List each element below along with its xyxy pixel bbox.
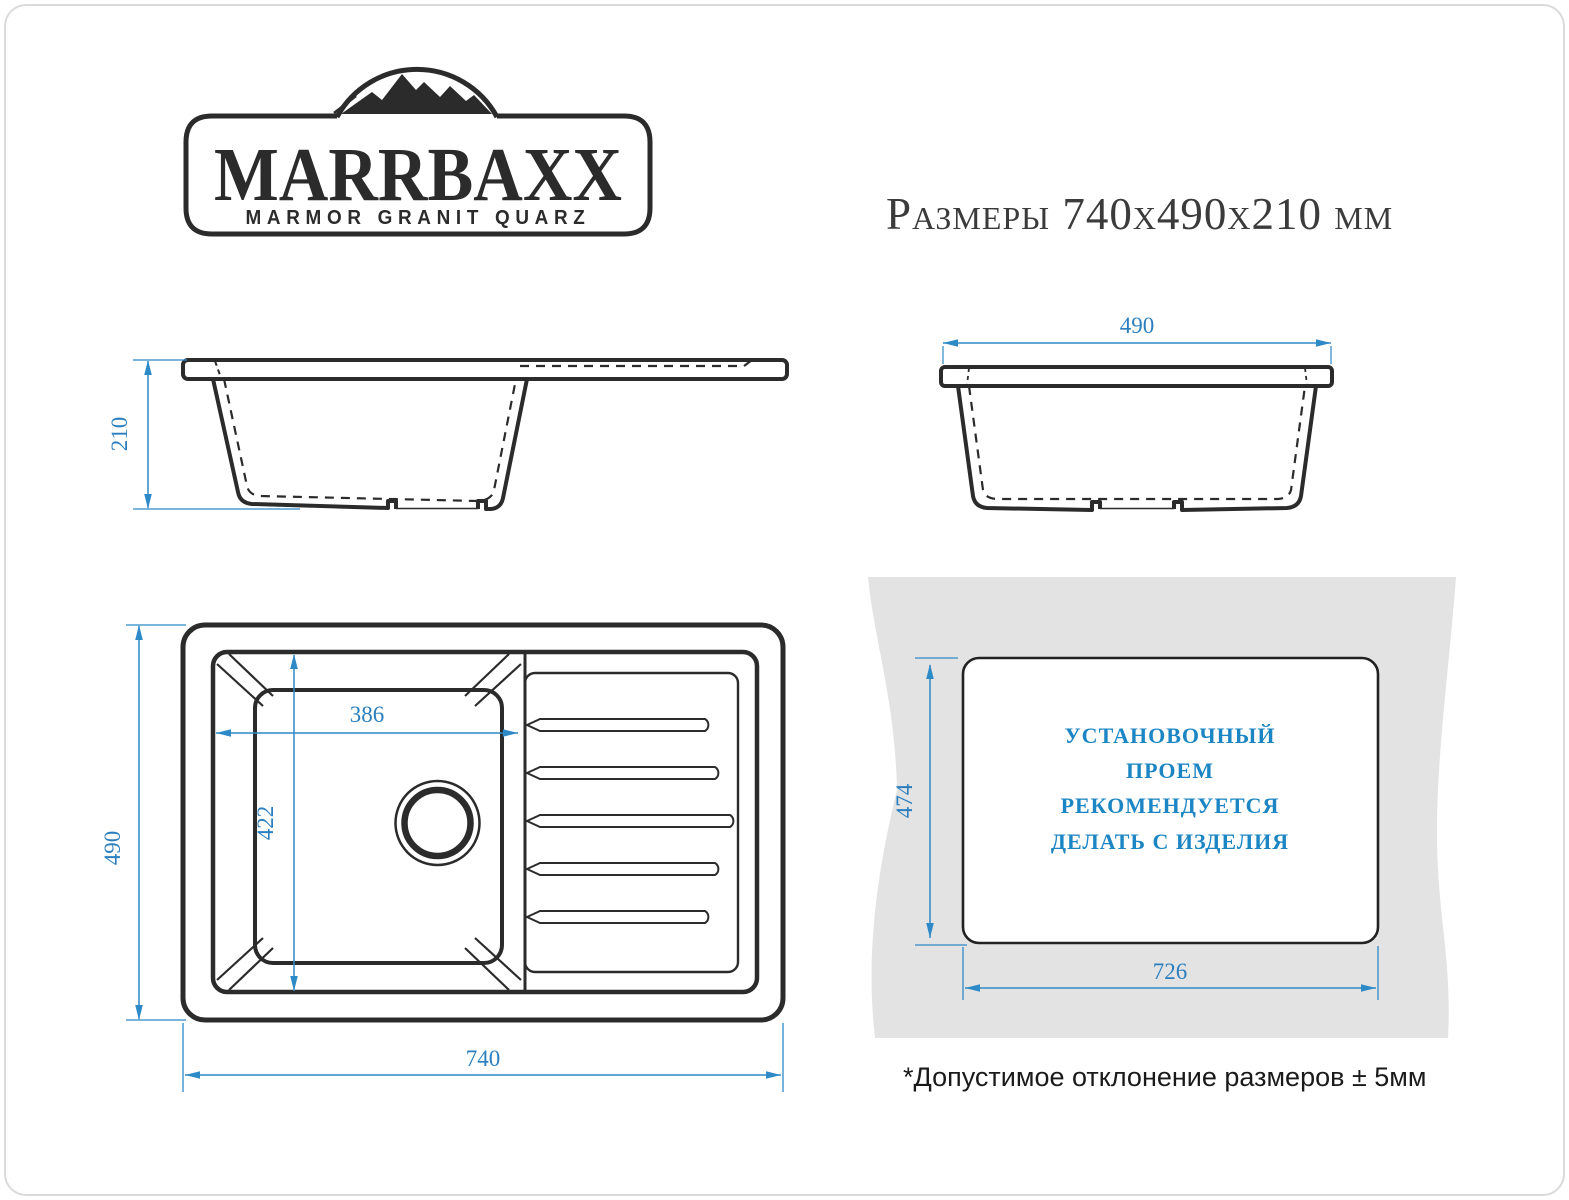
brand-name: MARRBAXX xyxy=(214,133,622,217)
arrow-left-icon xyxy=(185,1071,200,1079)
sink-length-dim-label: 740 xyxy=(466,1046,501,1071)
arrow-up-icon xyxy=(135,625,143,640)
page-title: Размеры 740х490х210 мм xyxy=(886,188,1393,240)
bowl-width-dim-label: 386 xyxy=(350,702,385,727)
install-note-line: УСТАНОВОЧНЫЙ xyxy=(1065,723,1276,748)
install-note-line: РЕКОМЕНДУЕТСЯ xyxy=(1061,793,1280,818)
front-rim xyxy=(941,367,1332,386)
arrow-down-icon xyxy=(144,494,152,509)
sink-depth-dim-label: 490 xyxy=(100,831,125,866)
drainboard-groove xyxy=(527,863,718,875)
arrow-left-icon xyxy=(943,339,958,347)
side-bowl-outline xyxy=(213,379,527,509)
drainboard-groove xyxy=(527,719,708,731)
arrow-right-icon xyxy=(766,1071,781,1079)
cutout-depth-dim-label: 474 xyxy=(892,783,917,818)
installation-diagram: УСТАНОВОЧНЫЙ ПРОЕМ РЕКОМЕНДУЕТСЯ ДЕЛАТЬ … xyxy=(855,570,1470,1050)
top-view-drawing: 386 422 490 740 xyxy=(95,600,805,1100)
drainboard-groove xyxy=(527,911,708,923)
install-note-line: ДЕЛАТЬ С ИЗДЕЛИЯ xyxy=(1051,829,1289,854)
drainboard-groove xyxy=(527,815,733,827)
side-height-dim-label: 210 xyxy=(107,417,132,452)
spec-sheet: MARRBAXX MARMOR GRANIT QUARZ Размеры 740… xyxy=(0,0,1569,1200)
brand-logo: MARRBAXX MARMOR GRANIT QUARZ xyxy=(180,52,660,247)
arrow-right-icon xyxy=(1316,339,1331,347)
side-rim xyxy=(183,360,787,379)
arrow-down-icon xyxy=(135,1005,143,1020)
front-view-drawing: 490 xyxy=(920,300,1360,525)
cutout-width-dim-label: 726 xyxy=(1153,959,1188,984)
tolerance-footnote: *Допустимое отклонение размеров ± 5мм xyxy=(903,1062,1426,1093)
front-bowl-outline xyxy=(958,386,1316,510)
bowl-depth-dim-label: 422 xyxy=(253,806,278,841)
arrow-up-icon xyxy=(144,360,152,375)
drainboard-groove xyxy=(527,767,718,779)
brand-tagline: MARMOR GRANIT QUARZ xyxy=(246,207,591,229)
side-view-drawing: 210 xyxy=(100,350,800,525)
install-note-line: ПРОЕМ xyxy=(1126,758,1214,783)
side-bowl-inner-dashed xyxy=(224,379,516,501)
bowl-opening xyxy=(255,690,502,963)
front-bowl-inner-dashed xyxy=(969,386,1305,499)
front-width-dim-label: 490 xyxy=(1120,313,1155,338)
